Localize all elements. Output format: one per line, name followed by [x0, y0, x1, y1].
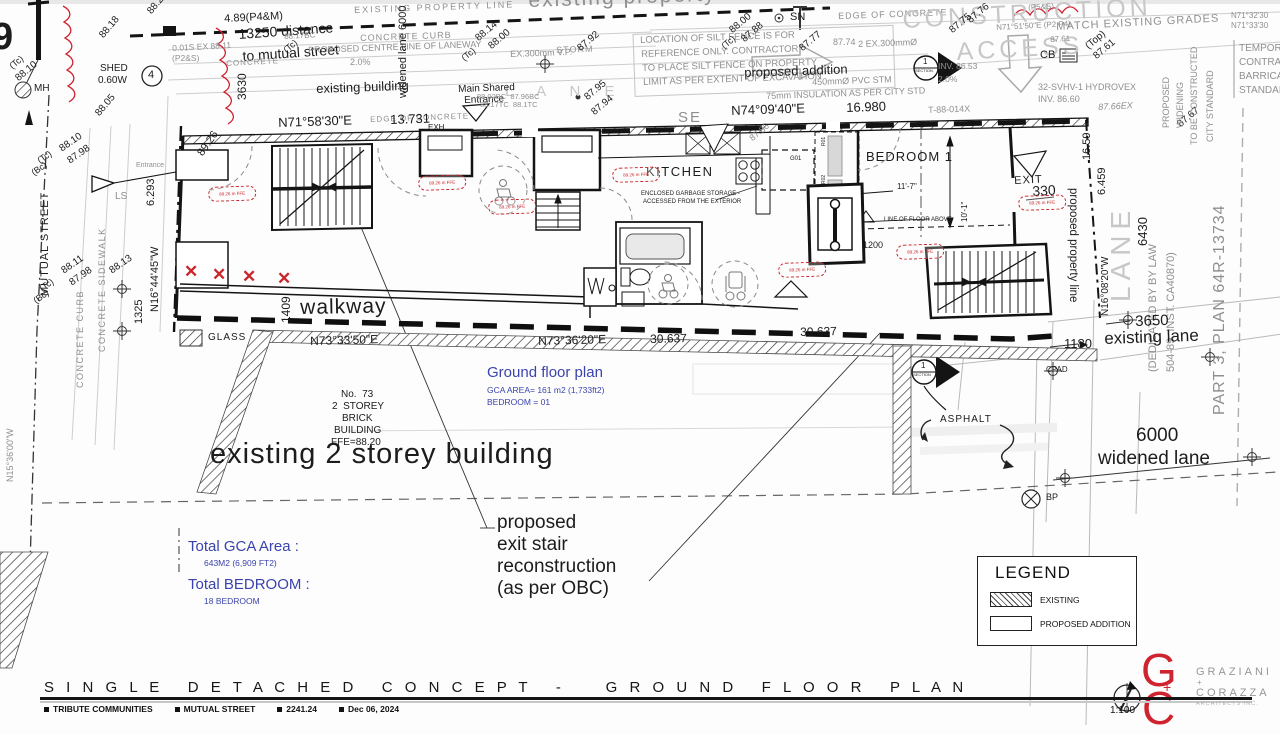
drawing-label: 2.0% [938, 75, 957, 84]
drawing-label: N71°32'30 [1231, 12, 1268, 20]
ground-floor-note: Ground floor plan GCA AREA= 161 m2 (1,73… [487, 364, 604, 407]
label-existing-lane: existing lane [1104, 327, 1199, 347]
ffe-tag: 89.26 m FFE [208, 185, 256, 202]
scale-label: 1:100 [1110, 705, 1135, 716]
bullet-icon [44, 707, 49, 712]
drawing-label: 2 STOREY [332, 402, 384, 412]
drawing-label: INV. 86.53 [938, 62, 977, 71]
drawing-label: CPAD [1046, 366, 1068, 374]
utility-pole [36, 0, 41, 60]
drawing-label: 10'-1" [961, 202, 969, 222]
legend-label-existing: EXISTING [1040, 595, 1080, 605]
label-exhaust-shaft: EXH [428, 124, 444, 132]
drawing-label: 2.0% [350, 58, 371, 67]
firm-name-2: CORAZZA [1196, 687, 1272, 699]
label-line-of-floor-above: LINE OF FLOOR ABOVE [884, 217, 952, 223]
tag-street: MUTUAL STREET [175, 704, 256, 714]
drawing-label: TO BE CONSTRUCTED [1190, 47, 1199, 145]
ground-floor-bedroom: BEDROOM = 01 [487, 397, 604, 407]
ground-floor-note-title: Ground floor plan [487, 364, 604, 381]
drawing-label: SE [678, 110, 702, 125]
section-marker-2: 1 [921, 362, 925, 370]
title-rule-shadow [40, 701, 1252, 703]
label-widened-lane: widened lane [1098, 449, 1210, 468]
drawing-label: 16.59 [1082, 132, 1093, 160]
drawing-label: WIDENING [1176, 82, 1185, 128]
bullet-icon [277, 707, 282, 712]
totals-note: Total GCA Area : 643M2 (6,909 FT2) Total… [188, 538, 310, 614]
legend-label-proposed: PROPOSED ADDITION [1040, 619, 1131, 629]
label-existing-2-storey-building: existing 2 storey building [210, 440, 554, 469]
drawing-label: ACCESSED FROM THE EXTERIOR [643, 199, 741, 205]
drawing-label: 0.60W [98, 76, 127, 86]
red-x-mark: ✕ [277, 270, 291, 287]
drawing-label: 11'-7" [897, 183, 917, 191]
drawing-label: SN [790, 12, 805, 23]
drawing-label: 87.61 [1050, 35, 1070, 44]
bearing-n15-36-00: N15°36'00"W [6, 428, 15, 482]
label-glass: GLASS [208, 333, 246, 343]
drawing-label: CONTRACTOR [1239, 58, 1280, 68]
ffe-tag: 89.26 m FFE [418, 174, 466, 191]
label-no-73: No. 73 [341, 390, 373, 400]
architect-logo-text: GRAZIANI + CORAZZA ARCHITECTS INC. [1196, 666, 1272, 707]
red-x-mark: ✕ [184, 263, 198, 280]
drawing-label: INV. 86.60 [1038, 95, 1080, 104]
glass-panel [180, 330, 202, 346]
garbage-storage-note: ENCLOSED GARBAGE STORAGE - [641, 191, 740, 197]
total-bedroom-value: 18 BEDROOM [204, 596, 310, 606]
label-proposed-property-line: proposed property line [1067, 188, 1079, 302]
title-tags: TRIBUTE COMMUNITIES MUTUAL STREET 2241.2… [44, 704, 399, 714]
bp-symbol [1022, 490, 1040, 508]
drawing-label: BUILDING [334, 426, 381, 436]
label-hydrovex: 32-SVHV-1 HYDROVEX [1038, 83, 1136, 92]
logo-plus: + [1163, 680, 1171, 694]
label-asphalt: ASPHALT [940, 415, 992, 425]
drawing-label: 87.66EX [1098, 101, 1133, 112]
label-bedroom-1: BEDROOM 1 [866, 150, 953, 163]
firm-name-3: ARCHITECTS INC. [1196, 701, 1272, 707]
drawing-label: (as per OBC) [497, 579, 609, 598]
ffe-tag: 89.26 m FFE [488, 198, 536, 215]
drawing-label: 1325 [134, 300, 145, 324]
legend-swatch-existing [990, 592, 1032, 607]
label-concrete-curb: CONCRETE CURB [76, 290, 85, 388]
drawing-label: BARRICADE [1239, 72, 1280, 82]
ffe-tag: 89.26 m FFE [1018, 194, 1066, 211]
drawing-label: R01 [822, 137, 827, 146]
drawing-label: 1180 [1064, 337, 1092, 350]
label-concrete-sidewalk: CONCRETE SIDEWALK [98, 227, 107, 352]
drawing-label: T-88-014X [928, 105, 970, 115]
cutoff-glyph: 9 [0, 18, 13, 56]
drawing-label: BRICK [342, 414, 373, 424]
drawing-label: PROPOSED [1162, 77, 1171, 128]
bearing-n16-44-45: N16°44'45"W [150, 247, 161, 312]
legend-title: LEGEND [995, 563, 1136, 583]
drawing-label: SECTION [913, 373, 931, 377]
drawing-label: (P2&S) [172, 54, 199, 63]
note-exit-stair: proposed [497, 513, 576, 532]
bearing-n71-58-30: N71°58'30"E [278, 113, 352, 129]
drawing-label: 1200 [863, 241, 883, 250]
legend-swatch-proposed [990, 616, 1032, 631]
label-6000: 6000 [1136, 426, 1178, 445]
bullet-icon [339, 707, 344, 712]
drawing-label: 30.637 [650, 332, 687, 345]
ffe-tag: 89.26 m FFE [612, 166, 660, 183]
ghost-lane-right: LANE [1107, 205, 1135, 302]
drawing-label: 87.74 [833, 38, 856, 47]
total-gca-label: Total GCA Area : [188, 538, 310, 555]
red-x-mark: ✕ [242, 268, 256, 285]
drawing-label: R02 [822, 175, 827, 184]
drawing-label: reconstruction [497, 557, 616, 576]
label-catch-basin: CB [1040, 50, 1055, 61]
label-walkway: walkway [300, 295, 387, 318]
bearing-n73-33-50: N73°33'50"E [310, 333, 378, 347]
label-part3-plan: PART 3, PLAN 64R-13734 [1212, 204, 1228, 415]
drawing-label: 6430 [1136, 217, 1149, 246]
title-rule [40, 697, 1252, 700]
drawing-label: 6000 [398, 6, 409, 30]
drawing-label: exit stair [497, 535, 568, 554]
ground-floor-gca: GCA AREA= 161 m2 (1,733ft2) [487, 385, 604, 395]
label-manhole: MH [34, 84, 50, 94]
ffe-tag: 89.26 m FFE [896, 243, 944, 260]
manhole-symbol [15, 82, 31, 98]
drawing-label: 13.731 [390, 112, 430, 126]
drawing-label: 30.637 [800, 325, 837, 338]
ffe-tag: 89.26 m FFE [778, 261, 826, 278]
drawing-label: 6.459 [1097, 167, 1108, 195]
bullet-icon [175, 707, 180, 712]
section-marker-1: 1 [923, 58, 927, 66]
firm-plus: + [1197, 678, 1272, 687]
drawing-label: CITY STANDARD [1206, 70, 1215, 142]
total-gca-value: 643M2 (6,909 FT2) [204, 558, 310, 568]
label-shed: SHED [100, 64, 128, 74]
drawing-label: N71°33'30 [1231, 22, 1268, 30]
drawing-label: 1409 [280, 296, 292, 323]
survey-point-4: 4 [148, 70, 154, 81]
drawing-label: BP [1046, 493, 1058, 502]
drawing-label: 6.293 [146, 178, 157, 206]
tag-client: TRIBUTE COMMUNITIES [44, 704, 153, 714]
total-bedroom-label: Total BEDROOM : [188, 576, 310, 593]
drawing-label: 16.980 [846, 100, 886, 114]
drawing-label: 88.17TC 88.1TC [480, 101, 538, 109]
drawing-label: STANDARD [1239, 86, 1280, 96]
leader-lines [348, 186, 880, 581]
drawing-label: G01 [790, 156, 801, 162]
tag-number: 2241.24 [277, 704, 317, 714]
drawing-label: (P5&S) [1028, 3, 1054, 12]
legend-item-existing: EXISTING [990, 592, 1136, 607]
drawing-label: 3630 [236, 73, 248, 100]
firm-name-1: GRAZIANI [1196, 666, 1272, 678]
drawing-label: TEMPORARY [1239, 44, 1280, 54]
drawing-label: SECTION [915, 69, 933, 73]
architectural-drawing-page: { "title_block": { "title": "S I N G L E… [0, 0, 1280, 725]
drawing-label: Entrance [136, 162, 164, 169]
bearing-n73-36-20: N73°36'20"E [538, 333, 606, 347]
sheet-title: S I N G L E D E T A C H E D C O N C E P … [44, 679, 967, 696]
label-dedicated-bylaw: (DEDICATED BY BY LAW [1148, 244, 1159, 372]
label-existing-building: existing building [316, 79, 409, 95]
drawing-label: LS [115, 192, 127, 202]
bearing-n74-09-40: N74°09'40"E [731, 101, 805, 117]
legend-item-proposed: PROPOSED ADDITION [990, 616, 1136, 631]
legend: LEGEND EXISTING PROPOSED ADDITION [977, 556, 1137, 646]
tag-date: Dec 06, 2024 [339, 704, 399, 714]
red-x-mark: ✕ [212, 266, 226, 283]
